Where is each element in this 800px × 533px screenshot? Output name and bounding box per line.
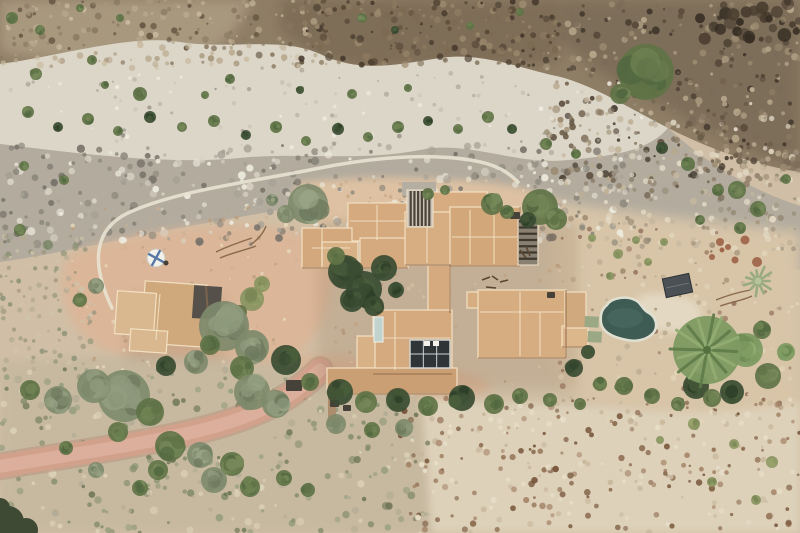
roof-connector <box>428 265 450 313</box>
tree-shrub <box>101 81 109 89</box>
tree-shrub <box>88 462 104 478</box>
spa-lap-pool <box>374 317 383 342</box>
tree-shrub <box>660 238 668 246</box>
tree-shrub <box>364 422 380 438</box>
roof-i2 <box>478 290 566 358</box>
tree-shrub <box>766 456 778 468</box>
tree-shrub <box>76 4 84 12</box>
tree-shrub <box>355 391 377 413</box>
tree-shrub <box>606 272 614 280</box>
tree-shrub <box>327 247 345 265</box>
tree-shrub <box>73 293 87 307</box>
region-southeast-slope <box>422 396 800 533</box>
tree-shrub <box>644 388 660 404</box>
tree-shrub <box>777 343 795 361</box>
tree-shrub <box>177 122 187 132</box>
tree-shrub <box>728 181 746 199</box>
tree-shrub <box>644 258 652 266</box>
tree-shrub <box>87 55 97 65</box>
tree-shrub <box>82 113 94 125</box>
tree-shrub <box>484 394 504 414</box>
tree-shrub <box>77 369 111 403</box>
tree-shrub <box>116 14 124 22</box>
tree-shrub <box>751 495 761 505</box>
tree-shrub <box>734 222 746 234</box>
tree-shrub <box>512 388 528 404</box>
tree-shrub <box>656 436 664 444</box>
tree-shrub <box>357 13 367 23</box>
tree-shrub <box>363 132 373 142</box>
tree-shrub <box>681 157 695 171</box>
tree-shrub <box>545 208 567 230</box>
tree-shrub <box>543 393 557 407</box>
tree-shrub <box>35 25 45 35</box>
roof-h-step <box>357 336 375 368</box>
tree-shrub <box>391 26 399 34</box>
tree-shrub <box>187 442 213 468</box>
tree-shrub <box>712 184 724 196</box>
tree-shrub <box>277 205 295 223</box>
tree-shrub <box>453 124 463 134</box>
tree-shrub <box>22 106 34 118</box>
tree-shrub <box>301 373 319 391</box>
tree-shrub <box>254 276 270 292</box>
tree-shrub <box>276 470 292 486</box>
tree-shrub <box>208 115 220 127</box>
tree-shrub <box>133 87 147 101</box>
tree-shrub <box>750 201 766 217</box>
tree-shrub <box>588 234 596 242</box>
tree-shrub <box>271 345 301 375</box>
tree-shrub <box>671 397 685 411</box>
tree-shrub <box>132 480 148 496</box>
glass-atrium <box>410 340 450 368</box>
tree-shrub <box>720 380 744 404</box>
scene-canvas <box>0 0 800 533</box>
tree-shrub <box>20 380 40 400</box>
tree-shrub <box>326 414 346 434</box>
tree-shrub <box>347 89 357 99</box>
tree-shrub <box>571 149 581 159</box>
tree-shrub <box>386 388 410 412</box>
tree-shrub <box>201 91 209 99</box>
tree-shrub <box>507 124 517 134</box>
tree-shrub <box>136 398 164 426</box>
tree-shrub <box>656 142 668 154</box>
tree-shrub <box>340 288 364 312</box>
tree-shrub <box>688 418 700 430</box>
tree-shrub <box>703 389 721 407</box>
tree-shrub <box>6 12 18 24</box>
tree-shrub <box>632 236 640 244</box>
tree-shrub <box>144 111 156 123</box>
tree-shrub <box>422 188 434 200</box>
tree-shrub <box>14 224 26 236</box>
tree-shrub <box>500 205 514 219</box>
tree-shrub <box>43 240 53 250</box>
tree-shrub <box>371 255 397 281</box>
tree-shrub <box>301 136 311 146</box>
planter-terrace <box>565 292 586 328</box>
tree-shrub <box>113 126 123 136</box>
tree-shrub <box>520 212 536 228</box>
tree-shrub <box>201 467 227 493</box>
tree-shrub <box>540 138 552 150</box>
tree-shrub <box>707 477 717 487</box>
tree-shrub <box>184 350 208 374</box>
tree-shrub <box>695 215 705 225</box>
tree-shrub <box>44 386 72 414</box>
tree-shrub <box>516 8 524 16</box>
tree-shrub <box>88 278 104 294</box>
tree-shrub <box>755 363 781 389</box>
tree-shrub <box>200 335 220 355</box>
tree-shrub <box>481 193 503 215</box>
tree-shrub <box>392 121 404 133</box>
tree-shrub <box>148 460 168 480</box>
tree-shrub <box>59 175 69 185</box>
aerial-photograph <box>0 0 800 533</box>
tree-shrub <box>59 441 73 455</box>
tree-shrub <box>270 121 282 133</box>
tree-shrub <box>574 398 586 410</box>
tree-shrub <box>423 116 433 126</box>
tree-shrub <box>53 122 63 132</box>
tree-shrub <box>581 345 595 359</box>
tree-shrub <box>19 161 29 171</box>
tree-shrub <box>418 396 438 416</box>
guest-roof-step <box>129 329 167 354</box>
tree-shrub <box>440 185 450 195</box>
